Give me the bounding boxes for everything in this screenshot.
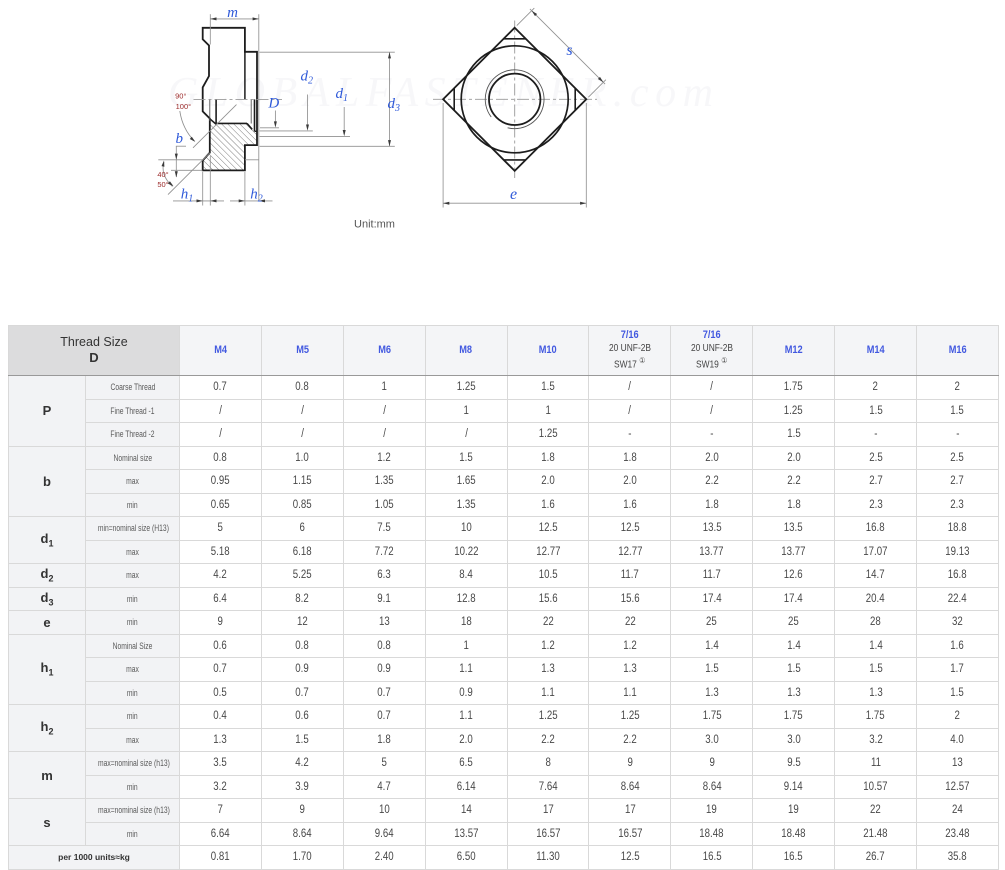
- svg-text:h2: h2: [250, 187, 263, 205]
- svg-text:90°: 90°: [175, 92, 186, 101]
- svg-text:e: e: [510, 186, 517, 203]
- svg-text:b: b: [176, 131, 184, 147]
- svg-text:h1: h1: [181, 187, 194, 205]
- svg-text:Unit:mm: Unit:mm: [354, 219, 395, 231]
- svg-text:50°: 50°: [157, 180, 168, 189]
- svg-text:D: D: [267, 96, 279, 112]
- svg-text:s: s: [566, 42, 572, 59]
- svg-text:GLOBALFASTENER.com: GLOBALFASTENER.com: [168, 70, 719, 116]
- svg-text:100°: 100°: [176, 102, 192, 111]
- svg-text:m: m: [227, 5, 238, 21]
- svg-text:40°: 40°: [157, 170, 168, 179]
